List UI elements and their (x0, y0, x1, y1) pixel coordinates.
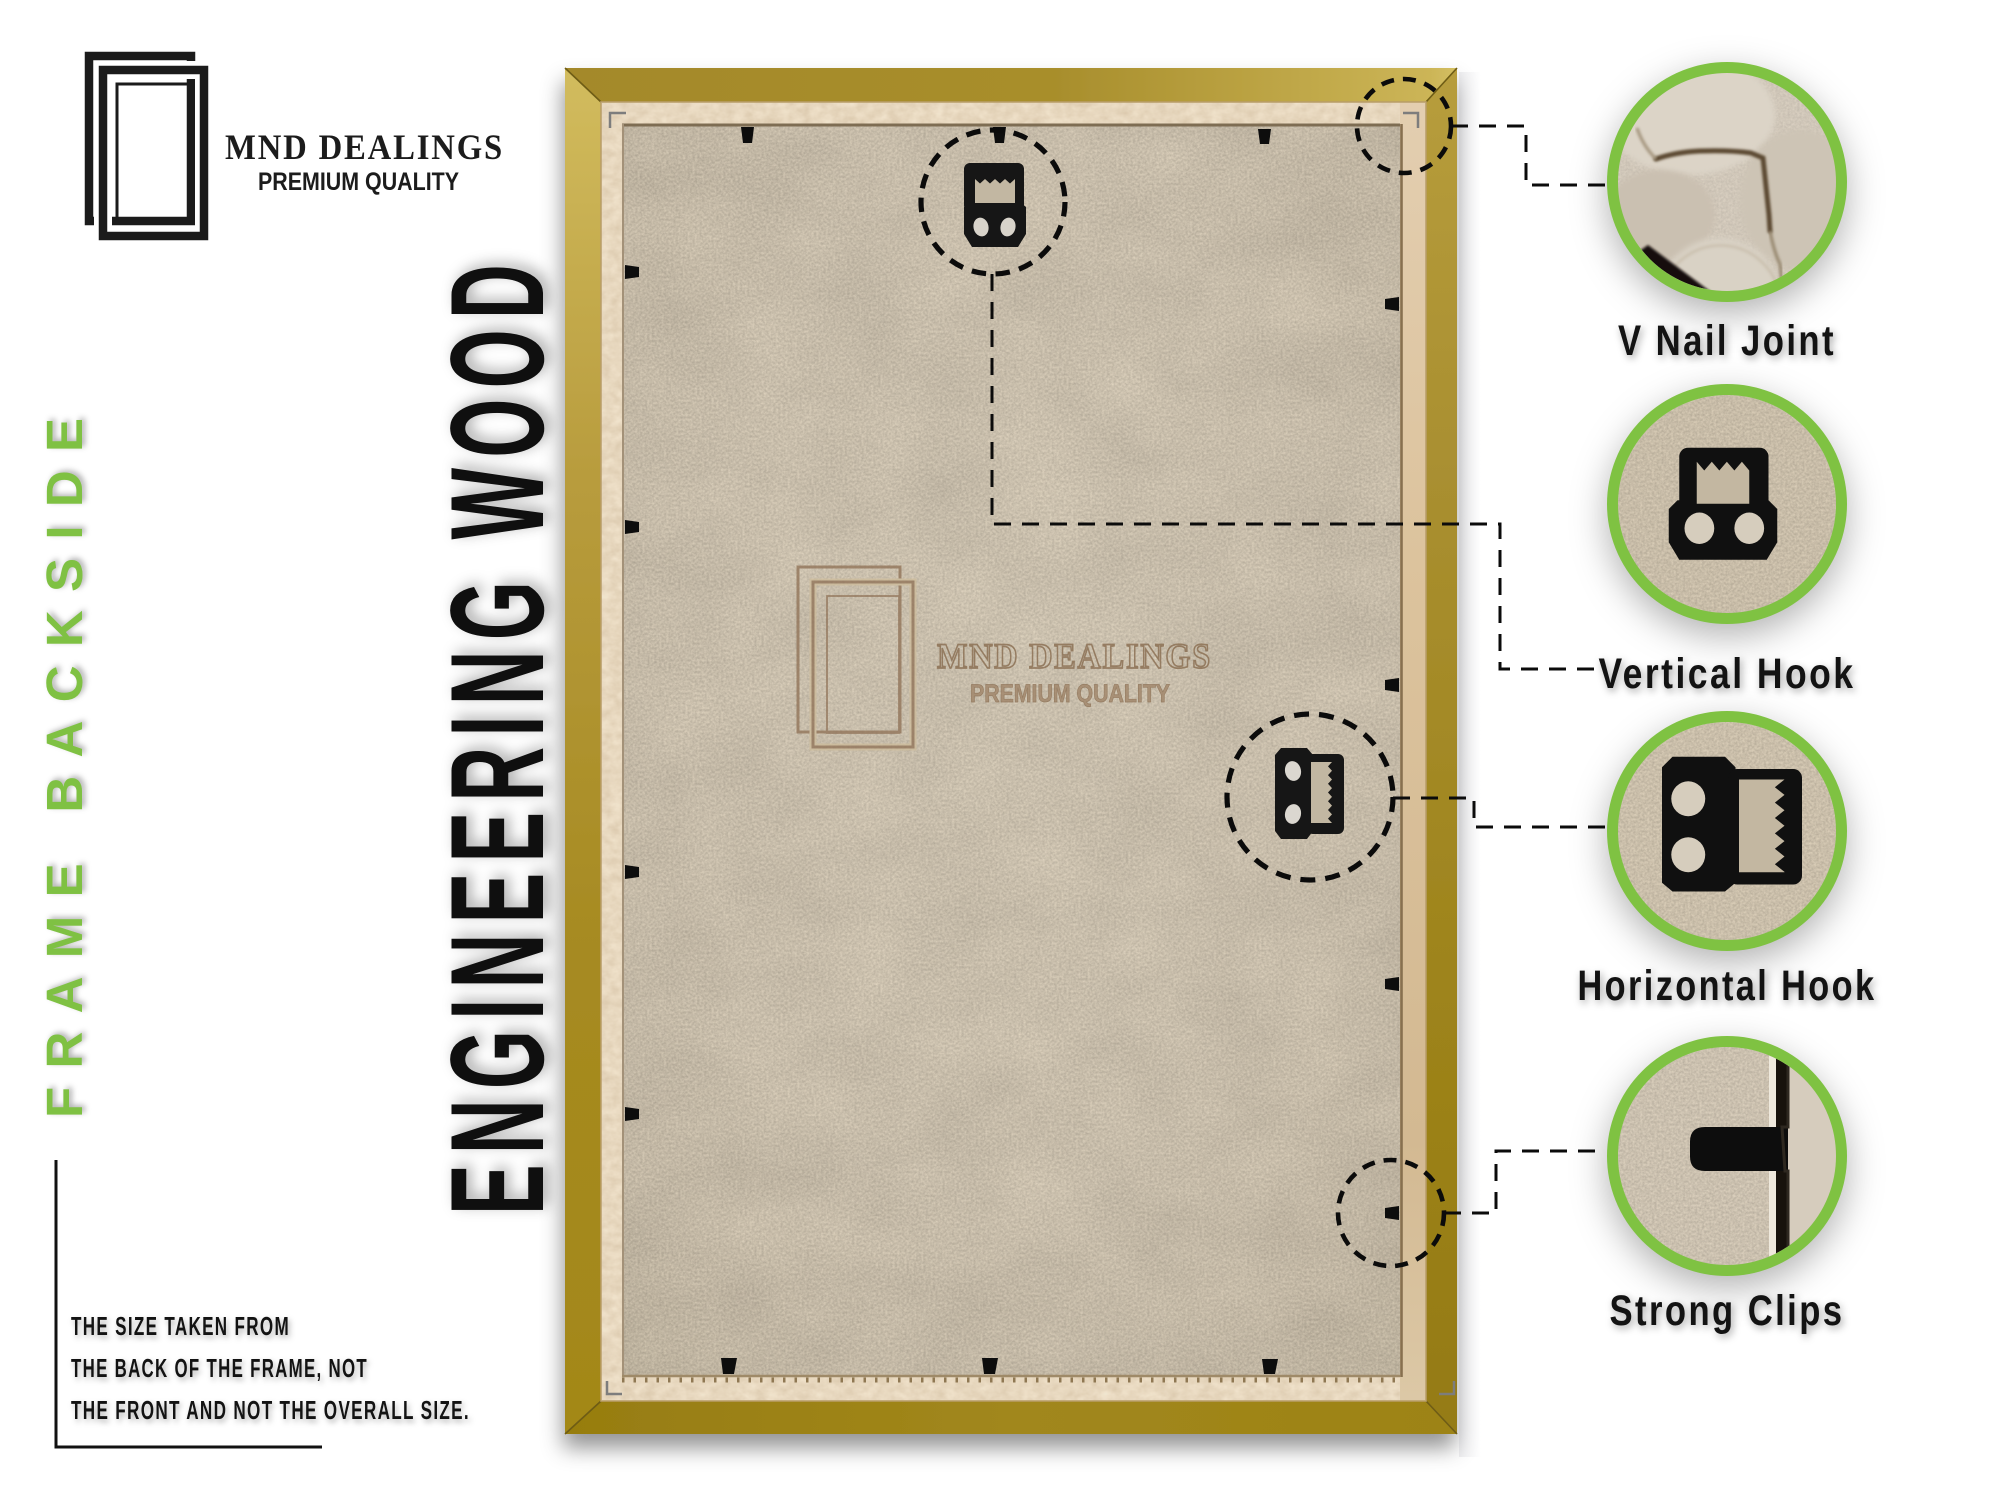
svg-text:Horizontal Hook: Horizontal Hook (1578, 962, 1877, 1010)
svg-text:PREMIUM QUALITY: PREMIUM QUALITY (258, 168, 459, 196)
svg-text:MND DEALINGS: MND DEALINGS (937, 636, 1212, 676)
svg-text:MND DEALINGS: MND DEALINGS (225, 127, 504, 167)
svg-text:Vertical Hook: Vertical Hook (1599, 650, 1856, 698)
svg-text:ENGINEERING WOOD: ENGINEERING WOOD (424, 254, 572, 1215)
svg-text:THE FRONT AND NOT THE OVERALL: THE FRONT AND NOT THE OVERALL SIZE. (71, 1395, 470, 1425)
svg-text:THE BACK OF THE FRAME, NOT: THE BACK OF THE FRAME, NOT (71, 1353, 368, 1383)
svg-text:PREMIUM QUALITY: PREMIUM QUALITY (970, 680, 1170, 708)
svg-text:V Nail Joint: V Nail Joint (1618, 317, 1836, 365)
svg-text:Strong Clips: Strong Clips (1610, 1287, 1845, 1335)
svg-text:THE SIZE TAKEN FROM: THE SIZE TAKEN FROM (71, 1311, 290, 1341)
